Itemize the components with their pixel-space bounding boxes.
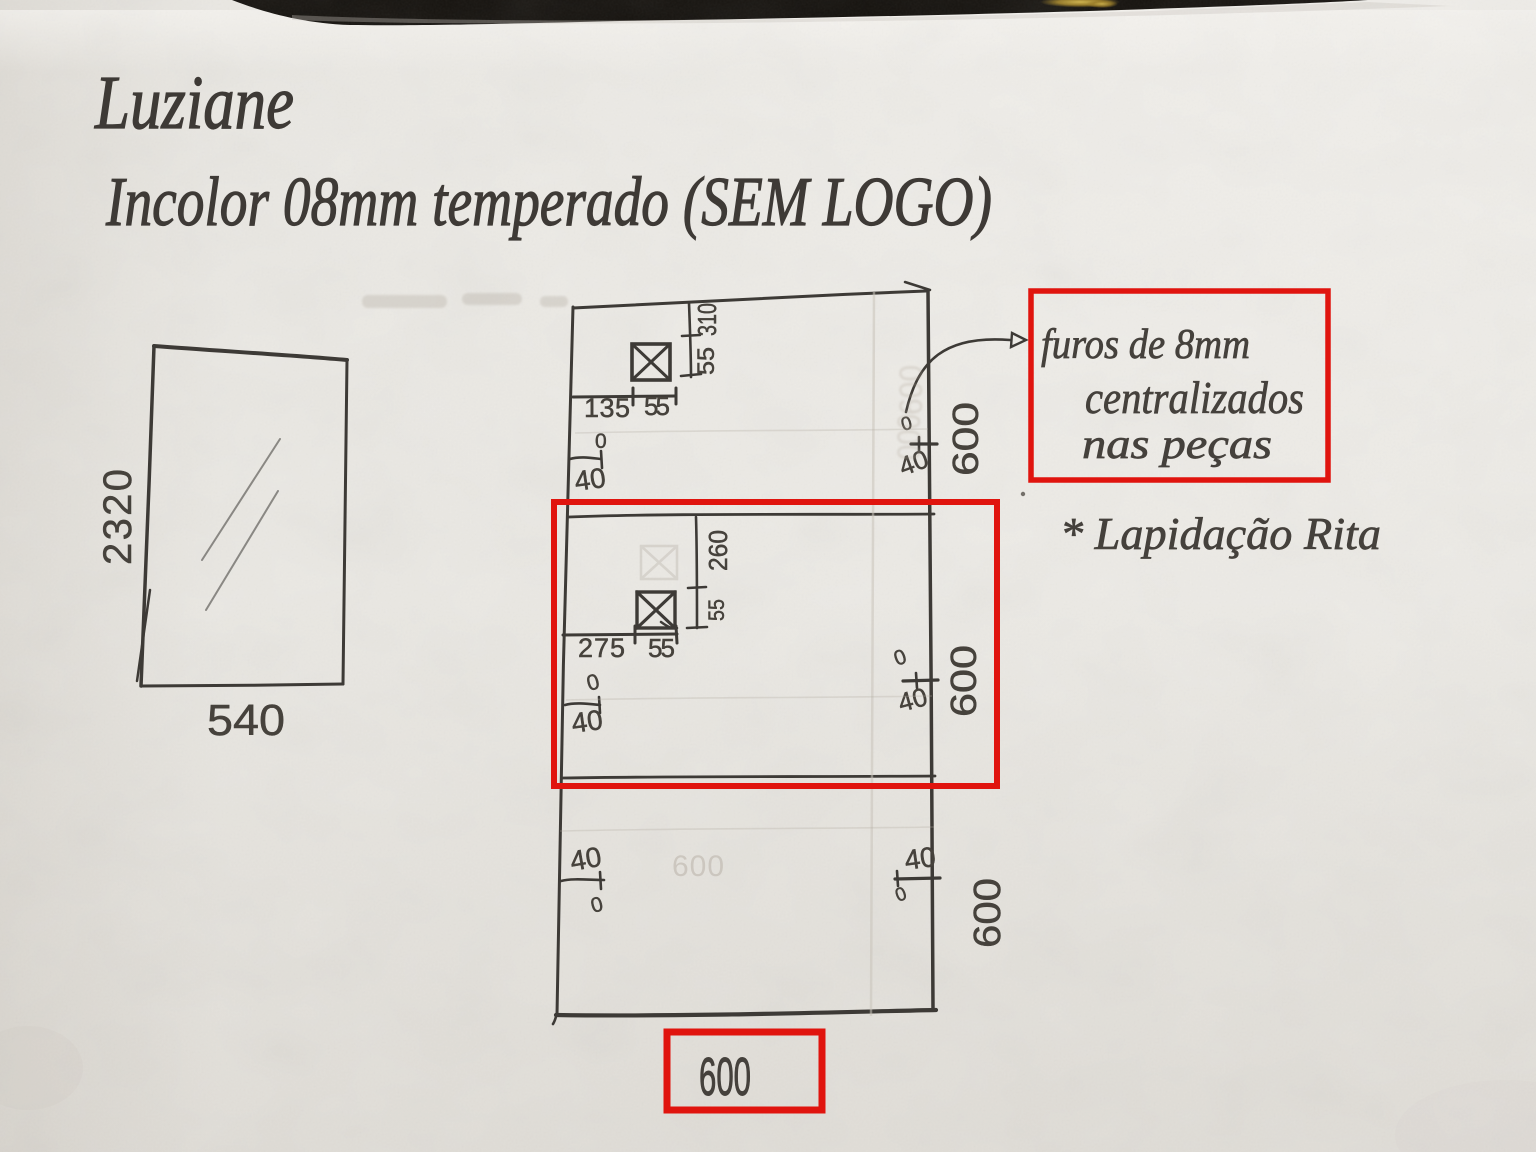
svg-text:55: 55	[704, 599, 729, 621]
svg-text:600: 600	[945, 402, 986, 476]
svg-text:0: 0	[595, 430, 607, 453]
svg-text:600: 600	[699, 1047, 751, 1107]
svg-text:600: 600	[967, 878, 1009, 948]
svg-text:310: 310	[692, 303, 722, 336]
svg-text:600: 600	[943, 645, 984, 717]
svg-text:furos de 8mm: furos de 8mm	[1041, 322, 1250, 368]
svg-text:Incolor 08mm temperado (SEM LO: Incolor 08mm temperado (SEM LOGO)	[105, 164, 992, 241]
svg-text:* Lapidação Rita: * Lapidação Rita	[1060, 508, 1381, 559]
svg-text:600: 600	[672, 850, 724, 883]
svg-text:55: 55	[644, 391, 670, 421]
svg-text:centralizados: centralizados	[1085, 373, 1304, 423]
svg-text:40: 40	[573, 462, 608, 497]
svg-text:260: 260	[703, 530, 733, 571]
svg-text:55: 55	[648, 633, 675, 663]
svg-text:40: 40	[570, 704, 605, 739]
svg-text:600: 600	[893, 365, 929, 415]
svg-text:000: 000	[891, 414, 927, 460]
svg-text:nas peças: nas peças	[1082, 422, 1272, 468]
svg-text:40: 40	[568, 841, 604, 877]
svg-text:540: 540	[207, 696, 285, 745]
svg-text:55: 55	[693, 347, 720, 375]
svg-text:275: 275	[578, 633, 625, 663]
svg-text:40: 40	[903, 841, 938, 876]
svg-text:135: 135	[584, 393, 630, 423]
svg-text:Luziane: Luziane	[94, 61, 294, 145]
